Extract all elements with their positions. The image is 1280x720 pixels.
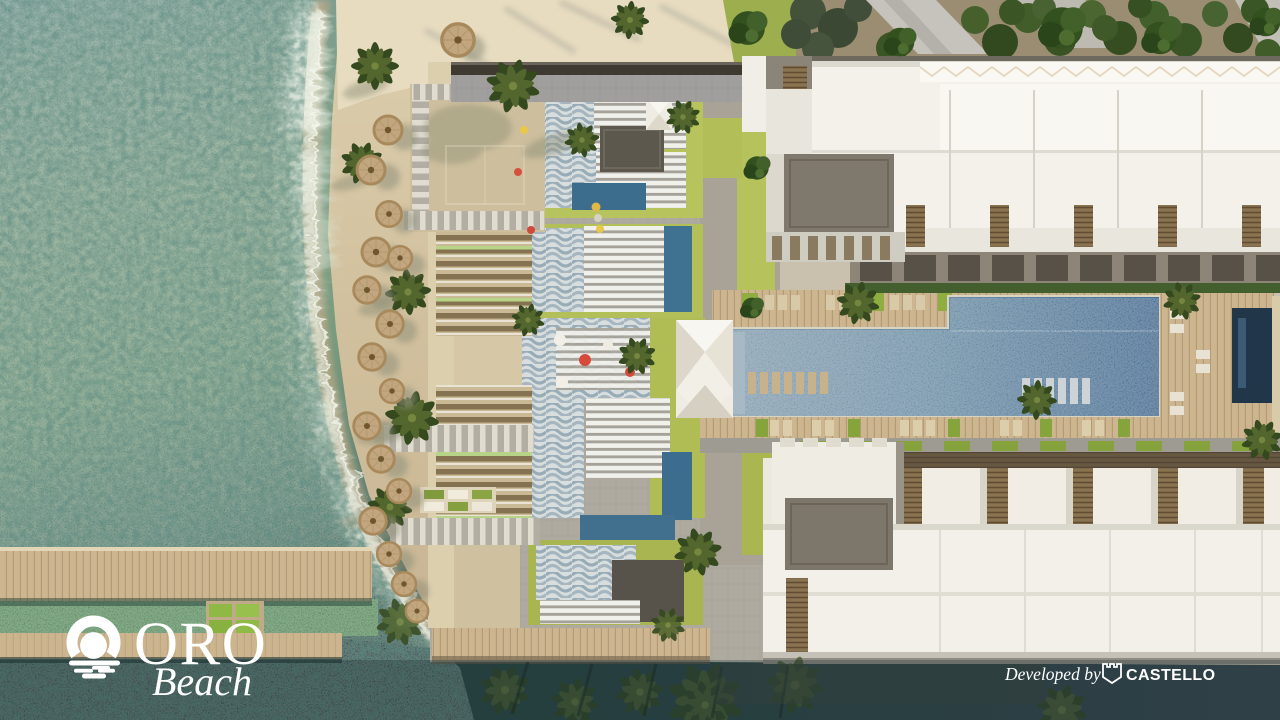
svg-text:Beach: Beach (152, 659, 252, 704)
svg-text:Developed by: Developed by (1004, 664, 1101, 684)
svg-text:CASTELLO: CASTELLO (1126, 667, 1215, 684)
